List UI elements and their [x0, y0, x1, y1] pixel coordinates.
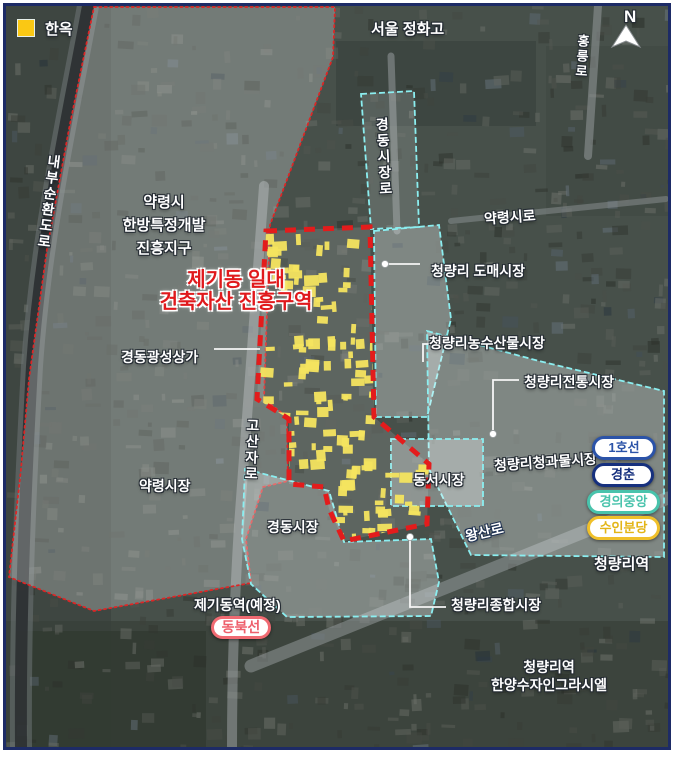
station-label-jegidong: 제기동역(예정) — [194, 595, 281, 615]
map-figure: 한옥 N 서울 정화고 홍릉로 내부순환도로 경동시장로 약령시로 약령시 한방… — [0, 0, 680, 757]
badge-line1: 1호선 — [592, 436, 656, 460]
road-label-gyeongdong-sijang-ro: 경동시장로 — [372, 117, 396, 198]
label-jonghap-market: 청량리종합시장 — [451, 595, 541, 615]
badge-gyeongchun-line: 경춘 — [592, 463, 654, 487]
badge-gyeongui-jungang-line: 경의중앙 — [587, 490, 660, 514]
district-title: 제기동 일대 건축자산 진흥구역 — [136, 269, 336, 313]
label-hanyang-apartment: 청량리역 한양수자인그라시엘 — [469, 658, 629, 694]
map-frame: 한옥 N 서울 정화고 홍릉로 내부순환도로 경동시장로 약령시로 약령시 한방… — [3, 3, 671, 750]
district-title-line2: 건축자산 진흥구역 — [136, 291, 336, 313]
legend-hanok-swatch — [17, 19, 35, 37]
label-yangnyeong-market: 약령시장 — [139, 476, 191, 496]
badge-dongbuk-line: 동북선 — [211, 616, 271, 639]
zone-label-line1: 약령시 — [94, 191, 234, 214]
label-hanyang-line1: 청량리역 — [469, 658, 629, 676]
road-label-yangnyeongsi-ro: 약령시로 — [483, 205, 536, 229]
dot-domae — [382, 261, 389, 268]
badge-suin-bundang-line: 수인분당 — [587, 516, 660, 540]
compass-n-label: N — [624, 7, 636, 27]
label-dongseo-market: 동서시장 — [413, 470, 465, 490]
label-cheongnyangni-domae-market: 청량리 도매시장 — [431, 261, 525, 281]
zone-label-line2: 한방특정개발 — [94, 214, 234, 237]
district-title-line1: 제기동 일대 — [136, 269, 336, 291]
satellite-map: 한옥 N 서울 정화고 홍릉로 내부순환도로 경동시장로 약령시로 약령시 한방… — [6, 6, 668, 747]
dot-jonghap — [407, 534, 414, 541]
label-hanyang-line2: 한양수자인그라시엘 — [469, 676, 629, 694]
road-label-gosanja-ro: 고산자로 — [241, 418, 263, 483]
dot-jeontong — [490, 431, 497, 438]
zone-label-yangnyeongsi: 약령시 한방특정개발 진흥지구 — [94, 191, 234, 260]
legend-hanok-label: 한옥 — [45, 18, 73, 39]
zone-label-line3: 진흥지구 — [94, 237, 234, 260]
station-label-cheongnyangni: 청량리역 — [594, 553, 649, 574]
label-gyeongdong-gwangseong: 경동광성상가 — [121, 347, 198, 367]
label-jeontong-market: 청량리전통시장 — [524, 372, 614, 392]
road-label-hongneung-ro: 홍릉로 — [570, 33, 592, 79]
label-school: 서울 정화고 — [371, 18, 444, 39]
label-gyeongdong-market: 경동시장 — [267, 517, 319, 537]
label-nongsusanmul-market: 청량리농수산물시장 — [429, 333, 545, 353]
